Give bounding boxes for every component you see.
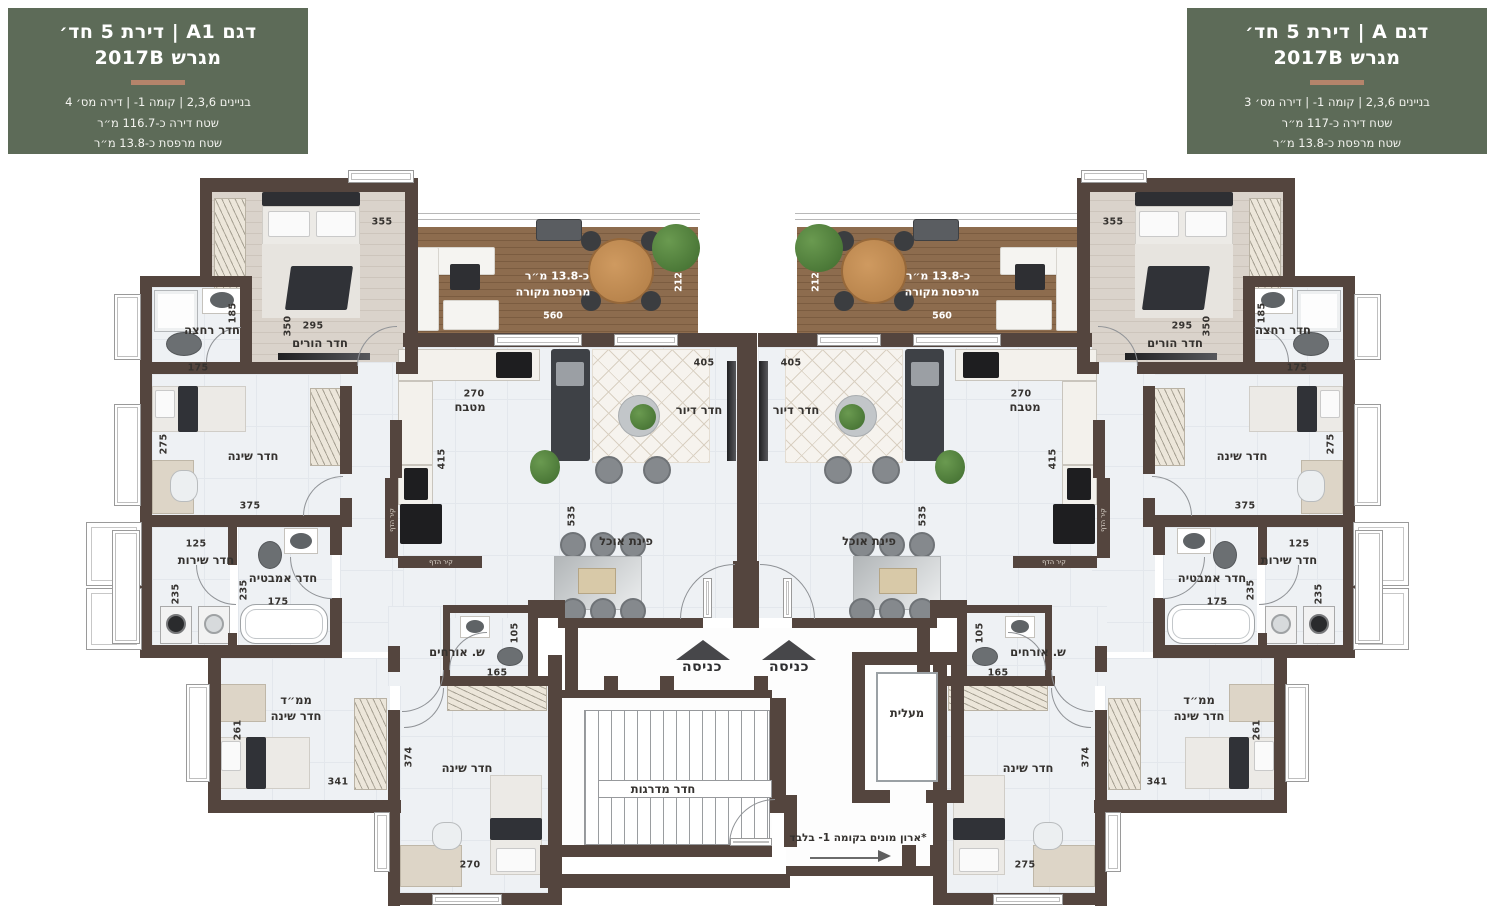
direction-arrow-line [810, 857, 880, 859]
appliance [1067, 468, 1091, 500]
bath-right-dim-185: 185 [1257, 303, 1268, 324]
pillow [221, 741, 241, 771]
parents-right-name: חדר הורים [1147, 336, 1203, 350]
bedroom1-right-dim-275: 275 [1326, 434, 1337, 455]
wall [660, 676, 674, 698]
wall [1143, 515, 1355, 527]
parents-left-dim-355: 355 [372, 217, 393, 228]
bath-right-name: חדר רחצה [1255, 323, 1311, 337]
wall [240, 287, 252, 364]
throw-blanket [1229, 737, 1249, 789]
outdoor-chair [581, 231, 601, 251]
wall [140, 374, 152, 524]
balcony-left-name: מרפסת מקורה [516, 286, 591, 299]
bath-left-dim-175: 175 [188, 363, 209, 374]
window [374, 812, 390, 872]
wall [388, 646, 400, 672]
wall [1143, 386, 1155, 474]
pillow [496, 848, 536, 872]
kitchen-right-dim-270: 270 [1011, 389, 1032, 400]
bedroom2-right-dim-275: 275 [1015, 860, 1036, 871]
furniture-dark [1015, 264, 1045, 290]
wall [1160, 646, 1287, 658]
blast-wall-left-v: קיר הדף [388, 508, 396, 532]
wall [960, 605, 1052, 613]
guest-wc-right-dim-165: 165 [988, 668, 1009, 679]
wall [208, 646, 335, 658]
guest-wc-right-name: ש. אורחים [1010, 645, 1066, 659]
window [114, 404, 141, 506]
plant [530, 450, 560, 484]
outdoor-chair [641, 291, 661, 311]
wall [228, 633, 237, 645]
wall [926, 790, 964, 803]
dining-right-dim-535: 535 [918, 506, 929, 527]
window [993, 894, 1063, 905]
pillow [959, 848, 999, 872]
pillow [1254, 741, 1274, 771]
outdoor-sofa [996, 300, 1052, 330]
parents-right-dim-350: 350 [1202, 316, 1213, 337]
guest-wc-left-dim-165: 165 [487, 668, 508, 679]
bedroom2-left-dim-374: 374 [404, 747, 415, 768]
sink-basin [1011, 620, 1029, 633]
throw-blanket [490, 818, 542, 840]
wall [1094, 800, 1287, 813]
balcony-right-dim-212: 212 [811, 272, 822, 292]
wall [792, 618, 937, 628]
parents-left-dim-350: 350 [283, 316, 294, 337]
window [1355, 530, 1383, 644]
guest-wc-left-name: ש. אורחים [429, 645, 485, 659]
plant [652, 224, 700, 272]
chair [560, 532, 586, 558]
bath-right-dim-175: 175 [1287, 363, 1308, 374]
wall [208, 800, 401, 813]
throw-blanket [246, 737, 266, 789]
wall [443, 605, 535, 613]
bedroom1-left-dim-375: 375 [240, 501, 261, 512]
tv-unit [727, 361, 736, 461]
appliance [963, 352, 999, 378]
mamad-left-dim-341: 341 [328, 777, 349, 788]
window [112, 530, 140, 644]
tv-unit [278, 353, 370, 360]
kitchen-left-name: מטבח [454, 400, 485, 414]
pillow [1320, 390, 1340, 418]
wall [340, 386, 352, 474]
elevator-cab [876, 672, 938, 782]
window [1081, 170, 1147, 183]
entrance-left-label: כניסה [682, 659, 722, 675]
desk-chair [432, 822, 462, 850]
cushion [911, 362, 939, 386]
balcony-left-area: כ-13.8 מ״ר [525, 270, 589, 283]
closet-hatch [1108, 698, 1141, 790]
wall [1258, 633, 1267, 645]
plant [935, 450, 965, 484]
mamad-left-name2: חדר שינה [271, 709, 322, 723]
machine-door [166, 614, 186, 634]
window [817, 334, 881, 346]
wall [330, 527, 342, 555]
bedroom1-left-name: חדר שינה [228, 449, 279, 463]
mamad-left-dim-261: 261 [233, 720, 244, 741]
service-left-name: חדר שירות [178, 553, 234, 567]
entrance-arrow-icon [762, 640, 816, 660]
wall [528, 600, 565, 618]
kitchen-counter [398, 381, 433, 465]
floor-plan: כ-13.8 מ״רמרפסת מקורה560212חדר הורים2953… [0, 0, 1495, 909]
wall [1093, 420, 1105, 478]
pillow [1139, 211, 1179, 237]
guest-wc-left-dim-105: 105 [510, 623, 521, 644]
desk [1033, 845, 1095, 887]
plant [630, 404, 656, 430]
closet-hatch [354, 698, 387, 790]
machine-door [1309, 614, 1329, 634]
kitchen-right-dim-415: 415 [1048, 449, 1059, 470]
kitchen-left-dim-415: 415 [437, 449, 448, 470]
balcony-right-dim-560: 560 [932, 311, 952, 322]
chair [909, 532, 935, 558]
balcony-left-dim-212: 212 [674, 272, 685, 292]
throw-blanket [285, 266, 353, 310]
window [114, 294, 141, 360]
wall [604, 676, 618, 698]
entrance-right-label: כניסה [769, 659, 809, 675]
wall [140, 515, 352, 527]
sink-basin [290, 533, 312, 549]
outdoor-sofa [443, 300, 499, 330]
grill-icon [536, 219, 582, 241]
desk [218, 684, 266, 722]
chair [824, 456, 852, 484]
service-right-name: חדר שירות [1261, 553, 1317, 567]
chair [595, 456, 623, 484]
living-left-name: חדר דיור [676, 403, 723, 417]
cushion [556, 362, 584, 386]
serving-tray [879, 568, 917, 594]
appliance [1053, 504, 1095, 544]
window [1105, 812, 1121, 872]
window [1285, 684, 1309, 782]
bathtub-right-dim-235: 235 [1246, 580, 1257, 601]
service-left-dim-125: 125 [186, 539, 207, 550]
bathtub-left-dim-235: 235 [239, 580, 250, 601]
furniture-dark [450, 264, 480, 290]
parents-right-dim-355: 355 [1103, 217, 1124, 228]
mamad-right-name1: ממ״ד [1183, 693, 1215, 707]
floor-plan-page: דגם A1 | דירת 5 חד׳ מגרש 2017B בניינים 2… [0, 0, 1495, 909]
kitchen-counter [1062, 381, 1097, 465]
service-left-dim-235: 235 [171, 584, 182, 605]
bedroom1-left-dim-275: 275 [159, 434, 170, 455]
dining-left-dim-535: 535 [567, 506, 578, 527]
appliance [404, 468, 428, 500]
service-right-dim-235: 235 [1314, 584, 1325, 605]
machine-door [204, 614, 224, 634]
living-left-dim-405: 405 [694, 358, 715, 369]
window [186, 684, 210, 782]
wall [733, 561, 759, 628]
wall [951, 652, 964, 803]
throw-blanket [178, 386, 198, 432]
direction-arrow-icon [878, 850, 891, 862]
throw-blanket [953, 818, 1005, 840]
living-right-dim-405: 405 [781, 358, 802, 369]
balcony-right-area: כ-13.8 מ״ר [906, 270, 970, 283]
stairwell-label: חדר מדרגות [631, 782, 696, 796]
bathtub [1167, 604, 1255, 644]
wall [1137, 362, 1355, 374]
wall [565, 628, 578, 690]
window [348, 170, 414, 183]
balcony-right-name: מרפסת מקורה [905, 286, 980, 299]
wall [390, 420, 402, 478]
blast-wall-right-h: קיר הדף [1042, 558, 1066, 566]
living-right-name: חדר דיור [773, 403, 820, 417]
plant [839, 404, 865, 430]
elevator-label: מעלית [890, 706, 924, 720]
toilet [1213, 541, 1237, 569]
bath-left-name: חדר רחצה [184, 323, 240, 337]
toilet [258, 541, 282, 569]
bedroom2-right-name: חדר שינה [1003, 761, 1054, 775]
window [913, 334, 1001, 346]
kitchen-right-name: מטבח [1009, 400, 1040, 414]
bathtub-right-dim-175: 175 [1207, 597, 1228, 608]
desk-chair [1297, 470, 1325, 502]
furniture-dark [262, 192, 360, 206]
machine-door [1271, 614, 1291, 634]
mamad-right-name2: חדר שינה [1174, 709, 1225, 723]
mamad-left-name1: ממ״ד [280, 693, 312, 707]
parents-right-dim-295: 295 [1172, 321, 1193, 332]
parents-left-name: חדר הורים [292, 336, 348, 350]
blast-wall-right-v: קיר הדף [1099, 508, 1107, 532]
toilet [972, 647, 998, 666]
wall [1153, 598, 1165, 646]
outdoor-chair [834, 291, 854, 311]
kitchen-left-dim-270: 270 [464, 389, 485, 400]
pillow [155, 390, 175, 418]
entrance-arrow-icon [676, 640, 730, 660]
parents-left-dim-295: 295 [303, 321, 324, 332]
mamad-right-dim-261: 261 [1252, 720, 1263, 741]
desk-chair [1033, 822, 1063, 850]
window [614, 334, 678, 346]
dining-left-name: פינת אוכל [599, 534, 653, 548]
pillow [1185, 211, 1227, 237]
bathtub-left-name: חדר אמבטיה [249, 571, 317, 585]
wall [548, 845, 772, 857]
furniture-dark [1135, 192, 1233, 206]
wall [330, 598, 342, 646]
mamad-right-dim-341: 341 [1147, 777, 1168, 788]
window [494, 334, 582, 346]
wall [1243, 276, 1355, 287]
bedroom1-right-dim-375: 375 [1235, 501, 1256, 512]
wall [1283, 192, 1295, 280]
bathtub [240, 604, 328, 644]
wall [140, 287, 152, 367]
wall [1095, 710, 1107, 906]
wall [558, 618, 703, 628]
tv-unit [1125, 353, 1217, 360]
wall [930, 600, 967, 618]
grill-icon [913, 219, 959, 241]
desk [1229, 684, 1277, 722]
wall [388, 710, 400, 906]
bath-left-dim-185: 185 [228, 303, 239, 324]
wall [902, 845, 916, 869]
wall [852, 652, 865, 803]
wall [540, 845, 556, 887]
wall [852, 652, 964, 665]
wall [930, 845, 944, 869]
bathtub-right-name: חדר אמבטיה [1178, 571, 1246, 585]
wall [1153, 527, 1165, 555]
meters-note: *ארון מונים בקומה 1- בלבד [789, 832, 926, 844]
wall [737, 333, 757, 561]
window [432, 894, 502, 905]
plant [795, 224, 843, 272]
balcony-left-dim-560: 560 [543, 311, 563, 322]
guest-wc-right-dim-105: 105 [975, 623, 986, 644]
sink-basin [466, 620, 484, 633]
wall [140, 362, 358, 374]
appliance [496, 352, 532, 378]
chair [872, 456, 900, 484]
service-right-dim-125: 125 [1289, 539, 1310, 550]
window [1354, 294, 1381, 360]
wall [852, 790, 890, 803]
toilet [497, 647, 523, 666]
closet-hatch [310, 388, 343, 466]
blast-wall-left-h: קיר הדף [429, 558, 453, 566]
window [1354, 404, 1381, 506]
desk-chair [170, 470, 198, 502]
closet-hatch [447, 684, 547, 711]
closet-hatch [1152, 388, 1185, 466]
wall [140, 276, 252, 287]
bedroom2-right-dim-374: 374 [1081, 747, 1092, 768]
outdoor-chair [894, 231, 914, 251]
dining-right-name: פינת אוכל [842, 534, 896, 548]
chair [643, 456, 671, 484]
throw-blanket [1142, 266, 1210, 310]
desk [400, 845, 462, 887]
bathtub-left-dim-175: 175 [268, 597, 289, 608]
serving-tray [578, 568, 616, 594]
tv-unit [759, 361, 768, 461]
wall [1095, 646, 1107, 672]
wall [540, 874, 790, 888]
bedroom2-left-name: חדר שינה [442, 761, 493, 775]
throw-blanket [1297, 386, 1317, 432]
bedroom2-left-dim-270: 270 [460, 860, 481, 871]
sink-basin [1183, 533, 1205, 549]
bedroom1-right-name: חדר שינה [1217, 449, 1268, 463]
pillow [268, 211, 310, 237]
appliance [400, 504, 442, 544]
pillow [316, 211, 356, 237]
wall [200, 192, 212, 280]
wall [754, 676, 768, 698]
